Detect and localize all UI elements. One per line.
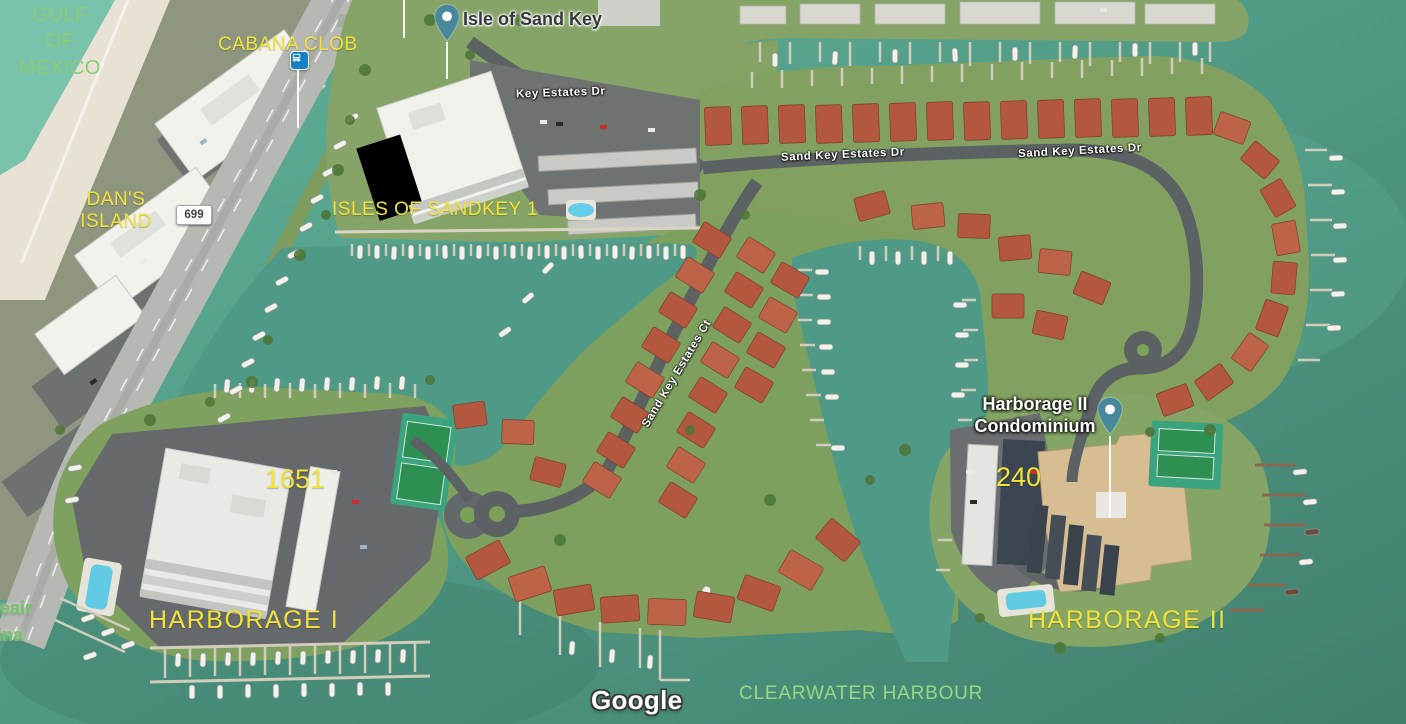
bus-stop-icon[interactable] (290, 51, 309, 70)
harborage-i-label: HARBORAGE I (149, 605, 339, 635)
isles-of-sandkey-1-label: ISLES OF SANDKEY 1 (332, 199, 538, 222)
bus-glyph (291, 52, 302, 63)
bus-stop-callout-line (297, 70, 299, 128)
dans-island-label: DAN'S ISLAND (58, 189, 174, 234)
harborage-ii-label: HARBORAGE II (1028, 605, 1227, 635)
harborage-pin-callout-line (1109, 436, 1111, 518)
route-699-badge: 699 (176, 205, 212, 225)
google-logo[interactable]: Google (591, 685, 682, 716)
gulf-of-mexico-label: GULF OF MEXICO (4, 2, 116, 81)
address-1651-label: 1651 (265, 463, 325, 495)
isle-of-sand-key-label[interactable]: Isle of Sand Key (463, 9, 602, 31)
address-240-label: 240 (996, 461, 1041, 493)
callout-line (403, 0, 405, 38)
harborage-ii-condominium-label[interactable]: Harborage II Condominium (962, 394, 1108, 438)
satellite-map-view[interactable]: GULF OF MEXICO CABANA CLOB Isle of Sand … (0, 0, 1406, 724)
marina-label-partial[interactable]: lleair rina (0, 595, 32, 649)
map-pin-icon (433, 3, 461, 43)
clearwater-harbour-label: CLEARWATER HARBOUR (739, 683, 983, 706)
isle-pin-callout-line (446, 42, 448, 79)
cabana-club-label: CABANA CLOB (218, 34, 358, 57)
